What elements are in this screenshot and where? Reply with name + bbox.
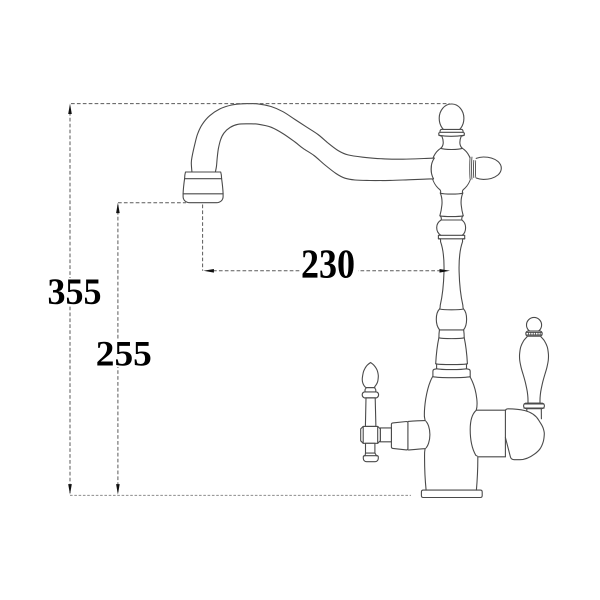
svg-text:355: 355 — [48, 272, 102, 313]
svg-text:230: 230 — [301, 241, 355, 287]
svg-text:255: 255 — [96, 334, 152, 374]
